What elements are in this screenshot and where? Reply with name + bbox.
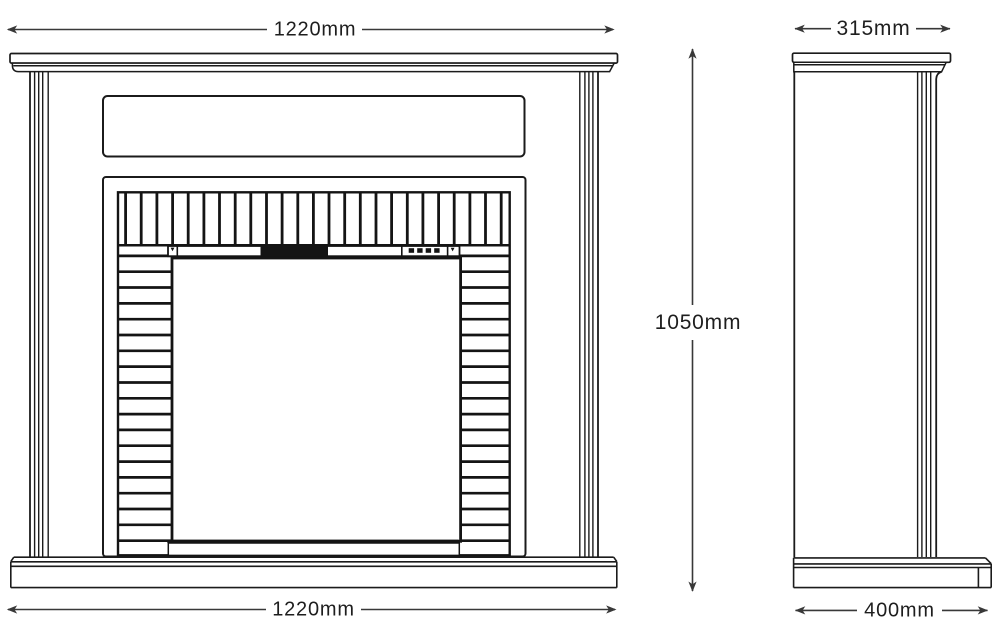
svg-text:1050mm: 1050mm	[655, 311, 742, 334]
svg-text:1220mm: 1220mm	[274, 19, 357, 41]
svg-text:1220mm: 1220mm	[272, 599, 355, 621]
svg-text:315mm: 315mm	[836, 17, 910, 40]
svg-text:400mm: 400mm	[864, 600, 935, 622]
